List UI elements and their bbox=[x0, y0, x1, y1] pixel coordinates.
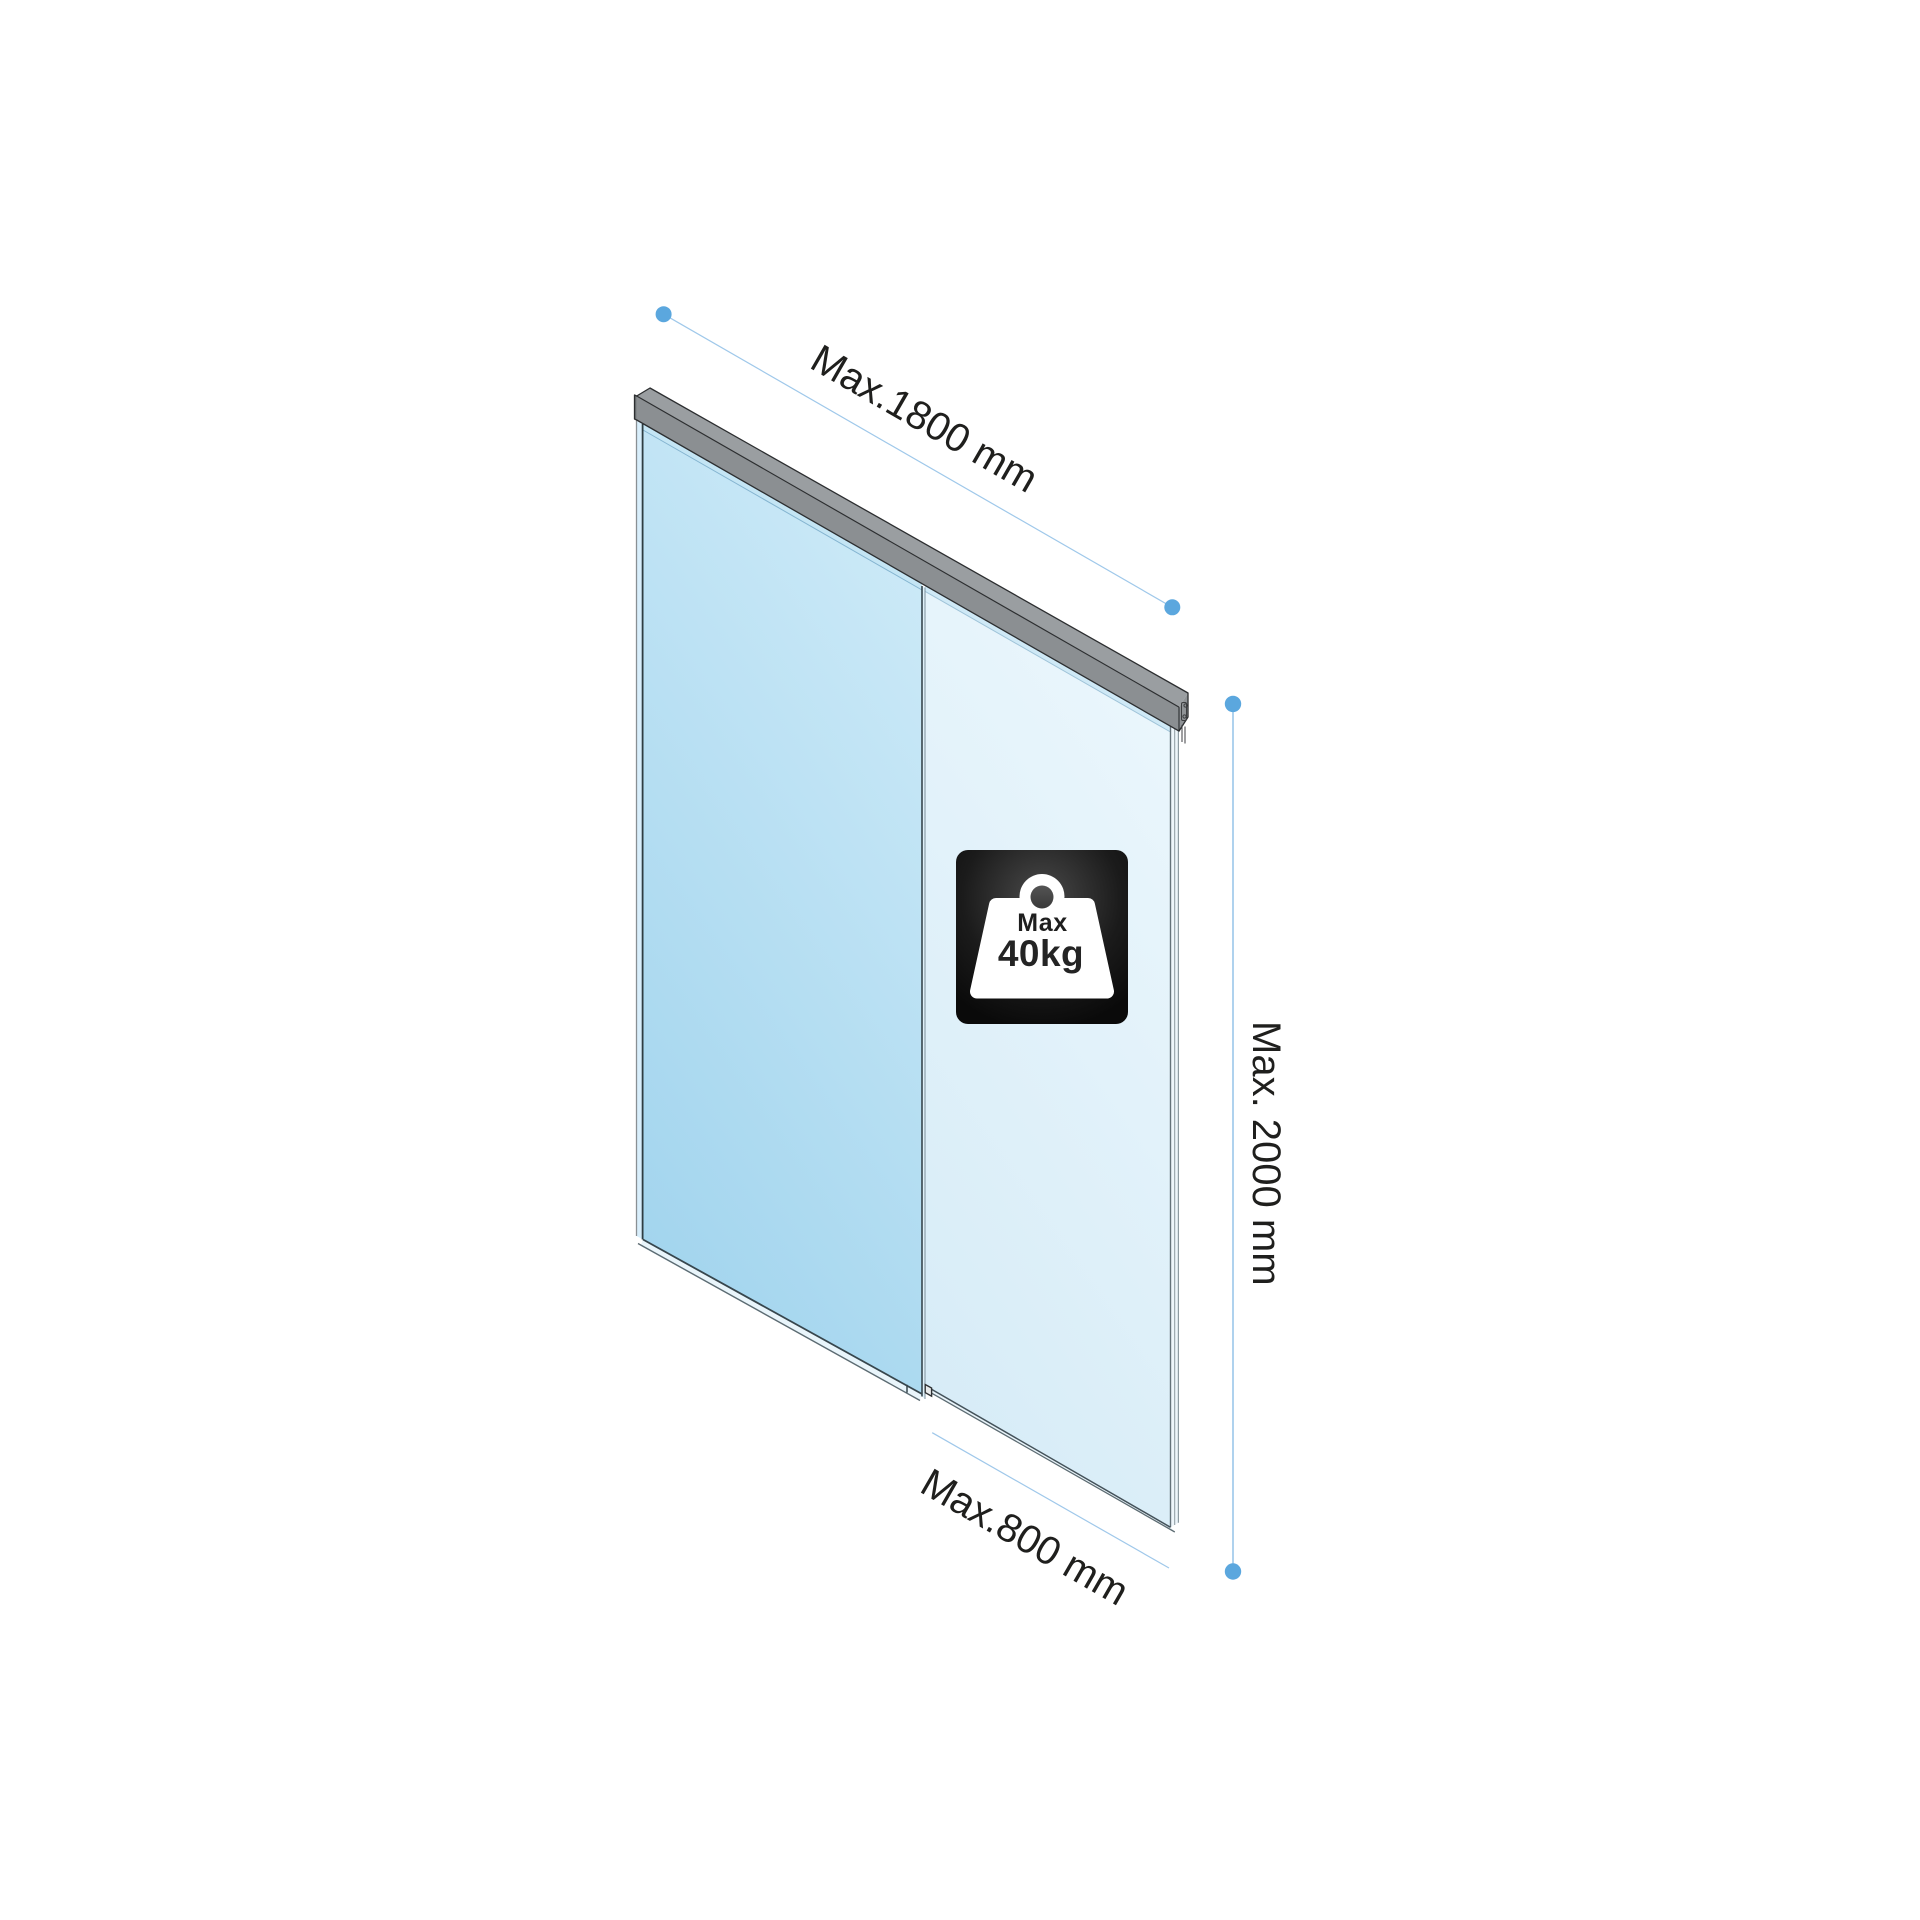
svg-text:Max. 2000 mm: Max. 2000 mm bbox=[1244, 1021, 1288, 1286]
svg-text:40kg: 40kg bbox=[998, 933, 1084, 974]
